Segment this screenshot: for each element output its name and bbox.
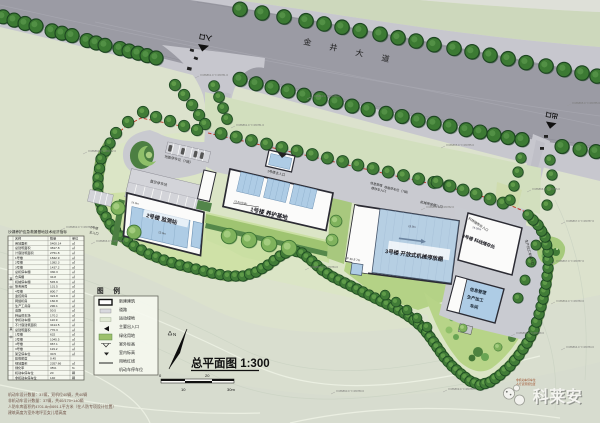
svg-text:名称: 名称 xyxy=(15,236,21,241)
svg-text:绿化率: 绿化率 xyxy=(15,365,24,370)
svg-text:X=86865.0 Y=45785.6: X=86865.0 Y=45785.6 xyxy=(446,143,474,147)
svg-text:1045.5: 1045.5 xyxy=(50,337,60,341)
svg-text:辆: 辆 xyxy=(72,370,75,375)
svg-text:50.5: 50.5 xyxy=(50,309,56,313)
svg-text:4号楼: 4号楼 xyxy=(15,341,23,346)
svg-text:X=86860.0 Y=45780.6: X=86860.0 Y=45780.6 xyxy=(312,94,340,98)
svg-text:总平面图 1:300: 总平面图 1:300 xyxy=(191,356,270,370)
svg-text:沙湖养护应急救援基地技术经济指标: 沙湖养护应急救援基地技术经济指标 xyxy=(8,229,67,234)
svg-text:计容建筑面积: 计容建筑面积 xyxy=(15,250,34,255)
svg-text:X=86866.0 Y=45786.6: X=86866.0 Y=45786.6 xyxy=(532,187,560,191)
svg-text:X=86861.0 Y=45781.6: X=86861.0 Y=45781.6 xyxy=(236,123,264,127)
svg-text:X=86863.0 Y=45783.6: X=86863.0 Y=45783.6 xyxy=(556,299,584,303)
svg-text:辆: 辆 xyxy=(72,375,75,380)
svg-text:非机动车棚: 非机动车棚 xyxy=(15,317,30,322)
svg-text:机动车停车位: 机动车停车位 xyxy=(15,370,34,375)
svg-text:170.2: 170.2 xyxy=(50,313,58,317)
svg-text:用地面积: 用地面积 xyxy=(15,240,27,245)
svg-text:总建筑面积: 总建筑面积 xyxy=(15,327,30,332)
svg-text:5400.14: 5400.14 xyxy=(50,241,61,245)
svg-text:34.8: 34.8 xyxy=(50,275,56,279)
svg-text:总建筑面积: 总建筑面积 xyxy=(15,245,30,250)
svg-text:1382.3: 1382.3 xyxy=(50,261,60,265)
svg-text:机械停车棚: 机械停车棚 xyxy=(15,279,30,284)
svg-text:X=86869.0 Y=45789.6: X=86869.0 Y=45789.6 xyxy=(448,387,476,391)
svg-text:警务用房: 警务用房 xyxy=(15,284,27,289)
svg-text:运动绿地: 运动绿地 xyxy=(119,315,135,321)
svg-text:X=86862.0 Y=45782.6: X=86862.0 Y=45782.6 xyxy=(88,149,116,153)
svg-text:图 例: 图 例 xyxy=(97,286,124,295)
svg-text:X=86868.0 Y=45788.6: X=86868.0 Y=45788.6 xyxy=(516,331,544,335)
svg-text:1842.9: 1842.9 xyxy=(50,256,60,260)
svg-text:140: 140 xyxy=(50,376,55,380)
svg-text:建筑高度为室外地坪至女儿墙高度: 建筑高度为室外地坪至女儿墙高度 xyxy=(8,410,66,415)
svg-text:2号楼: 2号楼 xyxy=(15,260,23,265)
svg-text:4号楼: 4号楼 xyxy=(15,288,23,293)
svg-text:35%: 35% xyxy=(50,366,56,370)
svg-text:主要出入口: 主要出入口 xyxy=(119,323,139,329)
svg-text:632: 632 xyxy=(50,333,55,337)
svg-text:机动车设计数量：37辆，双机位40辆，共40辆: 机动车设计数量：37辆，双机位40辆，共40辆 xyxy=(8,392,87,397)
svg-text:X=86865.0 Y=45785.6: X=86865.0 Y=45785.6 xyxy=(572,101,600,105)
svg-text:800.7: 800.7 xyxy=(50,289,58,293)
svg-text:不计容建筑面积: 不计容建筑面积 xyxy=(15,322,37,327)
svg-text:X=86864.0 Y=45784.6: X=86864.0 Y=45784.6 xyxy=(310,265,338,269)
svg-text:290.1: 290.1 xyxy=(50,304,58,308)
svg-text:用地红线: 用地红线 xyxy=(119,358,135,364)
svg-text:监控用房: 监控用房 xyxy=(15,293,27,298)
svg-text:转运停车场: 转运停车场 xyxy=(15,312,30,317)
svg-text:绿化用地: 绿化用地 xyxy=(119,332,135,338)
svg-text:967.1: 967.1 xyxy=(50,342,58,346)
svg-text:道路: 道路 xyxy=(119,306,127,312)
svg-text:30m: 30m xyxy=(227,387,235,392)
svg-text:室外标高: 室外标高 xyxy=(119,340,135,346)
svg-text:119.2: 119.2 xyxy=(50,347,58,351)
svg-text:N: N xyxy=(173,332,176,337)
svg-text:545.9: 545.9 xyxy=(50,280,58,284)
svg-text:人行道预留位置: 人行道预留位置 xyxy=(516,382,536,386)
svg-text:2号楼: 2号楼 xyxy=(15,336,23,341)
svg-text:其: 其 xyxy=(10,327,13,331)
svg-text:X=86866.0 Y=45786.6: X=86866.0 Y=45786.6 xyxy=(96,239,124,243)
svg-text:生产工具房: 生产工具房 xyxy=(15,303,30,308)
svg-text:X=86862.0 Y=45782.6: X=86862.0 Y=45782.6 xyxy=(426,205,454,209)
svg-text:3414.5: 3414.5 xyxy=(50,323,60,327)
svg-text:2357.66: 2357.66 xyxy=(50,361,61,365)
svg-text:中: 中 xyxy=(10,334,13,339)
svg-text:绿地面积: 绿地面积 xyxy=(15,360,27,365)
svg-text:其: 其 xyxy=(10,277,13,281)
svg-text:10: 10 xyxy=(181,387,186,392)
svg-text:1437.2: 1437.2 xyxy=(50,265,60,269)
svg-text:X=86867.0 Y=45787.6: X=86867.0 Y=45787.6 xyxy=(556,259,584,263)
svg-text:%: % xyxy=(72,366,75,370)
svg-text:30.5: 30.5 xyxy=(50,352,56,356)
svg-text:0.45: 0.45 xyxy=(50,357,56,361)
svg-text:总机停车棚: 总机停车棚 xyxy=(15,269,30,274)
svg-text:1号楼: 1号楼 xyxy=(15,332,23,337)
svg-text:1号楼: 1号楼 xyxy=(15,255,23,260)
svg-text:2751.8: 2751.8 xyxy=(50,251,60,255)
svg-text:X=86867.0 Y=45787.6: X=86867.0 Y=45787.6 xyxy=(566,219,594,223)
svg-text:道路: 道路 xyxy=(15,308,21,313)
svg-text:室内标高: 室内标高 xyxy=(119,349,135,355)
svg-text:20: 20 xyxy=(205,373,210,378)
svg-text:3号楼: 3号楼 xyxy=(15,264,23,269)
svg-text:X=86864.0 Y=45784.6: X=86864.0 Y=45784.6 xyxy=(566,345,594,349)
svg-text:数量: 数量 xyxy=(50,236,56,241)
svg-text:330.3: 330.3 xyxy=(50,270,58,274)
svg-text:新建建筑: 新建建筑 xyxy=(119,297,135,303)
svg-text:160.8: 160.8 xyxy=(50,299,58,303)
svg-text:单位: 单位 xyxy=(72,236,78,241)
svg-text:20: 20 xyxy=(50,371,54,375)
svg-text:X=86863.0 Y=45783.6: X=86863.0 Y=45783.6 xyxy=(66,225,94,229)
svg-text:770.3: 770.3 xyxy=(50,328,58,332)
svg-text:机动车停车位: 机动车停车位 xyxy=(119,366,143,372)
svg-text:科莱安: 科莱安 xyxy=(533,387,583,406)
svg-text:110.9: 110.9 xyxy=(50,318,58,322)
svg-text:非机动车设计数量：37辆，共40/170+140辆: 非机动车设计数量：37辆，共40/170+140辆 xyxy=(8,398,84,403)
svg-text:324.8: 324.8 xyxy=(50,294,58,298)
svg-text:架空停车位: 架空停车位 xyxy=(15,351,30,356)
svg-text:3817.8: 3817.8 xyxy=(50,246,60,250)
svg-text:非机动车停车位: 非机动车停车位 xyxy=(15,375,37,380)
svg-text:网络机房: 网络机房 xyxy=(15,298,27,303)
svg-text:131.5: 131.5 xyxy=(50,285,58,289)
svg-text:X=86861.0 Y=45781.6: X=86861.0 Y=45781.6 xyxy=(200,73,228,77)
svg-text:建筑密度: 建筑密度 xyxy=(15,356,27,361)
svg-text:人防车库面积约4701.8㎡/691.1平方米（在人防专项设: 人防车库面积约4701.8㎡/691.1平方米（在人防专项设计位置） xyxy=(8,404,116,409)
svg-text:中: 中 xyxy=(10,284,13,289)
svg-text:3号楼: 3号楼 xyxy=(15,346,23,351)
svg-text:X=86860.0 Y=45780.6: X=86860.0 Y=45780.6 xyxy=(336,389,364,393)
svg-text:仓库棚: 仓库棚 xyxy=(15,274,24,279)
